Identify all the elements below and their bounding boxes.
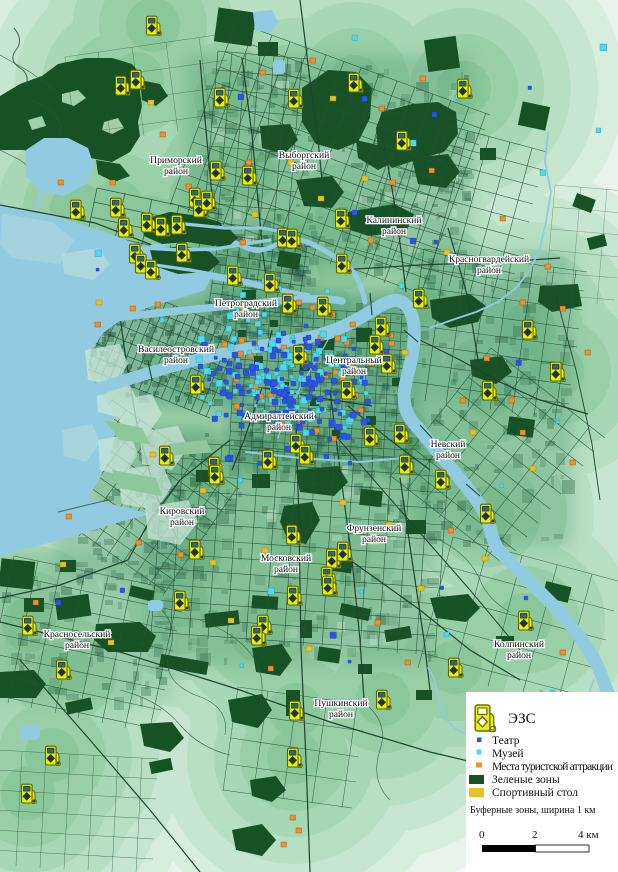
svg-text:Василеостровский: Василеостровский — [138, 344, 214, 355]
svg-text:Невский: Невский — [431, 439, 466, 450]
svg-text:4 км: 4 км — [578, 829, 599, 841]
svg-text:Зеленые зоны: Зеленые зоны — [492, 774, 560, 786]
svg-text:район: район — [362, 534, 386, 545]
svg-text:Буферные зоны, ширина 1 км: Буферные зоны, ширина 1 км — [470, 805, 596, 816]
svg-text:Петроградский: Петроградский — [215, 298, 277, 309]
svg-text:Пушкинский: Пушкинский — [314, 698, 367, 709]
svg-text:район: район — [477, 265, 501, 276]
svg-text:район: район — [507, 650, 531, 661]
svg-text:район: район — [267, 422, 291, 433]
svg-text:район: район — [234, 309, 258, 320]
svg-text:Фрунзенский: Фрунзенский — [347, 523, 402, 534]
svg-text:Приморский: Приморский — [150, 155, 202, 166]
svg-text:район: район — [65, 640, 89, 651]
svg-text:2: 2 — [532, 829, 538, 841]
svg-text:Московский: Московский — [261, 553, 311, 564]
svg-text:район: район — [164, 355, 188, 366]
svg-text:Театр: Театр — [492, 735, 520, 747]
svg-text:Красносельский: Красносельский — [44, 629, 111, 640]
svg-text:Красногвардейский: Красногвардейский — [449, 254, 529, 265]
svg-text:район: район — [274, 564, 298, 575]
svg-text:район: район — [342, 366, 366, 377]
svg-text:Выборгский: Выборгский — [279, 150, 329, 161]
svg-text:район: район — [164, 166, 188, 177]
svg-text:Калининский: Калининский — [366, 215, 421, 226]
svg-text:район: район — [292, 161, 316, 172]
svg-text:район: район — [329, 709, 353, 720]
svg-text:район: район — [436, 450, 460, 461]
svg-text:Адмиралтейский: Адмиралтейский — [244, 411, 314, 422]
svg-text:район: район — [170, 517, 194, 528]
svg-text:Центральный: Центральный — [326, 355, 382, 366]
svg-text:Спортивный стол: Спортивный стол — [492, 787, 578, 799]
svg-text:район: район — [382, 226, 406, 237]
svg-text:Музей: Музей — [492, 748, 524, 760]
svg-text:Кировский: Кировский — [160, 506, 205, 517]
svg-text:ЭЗС: ЭЗС — [508, 711, 536, 727]
svg-text:Места туристской аттракции: Места туристской аттракции — [492, 761, 613, 773]
svg-text:0: 0 — [479, 829, 485, 841]
svg-text:Колпинский: Колпинский — [494, 639, 544, 650]
